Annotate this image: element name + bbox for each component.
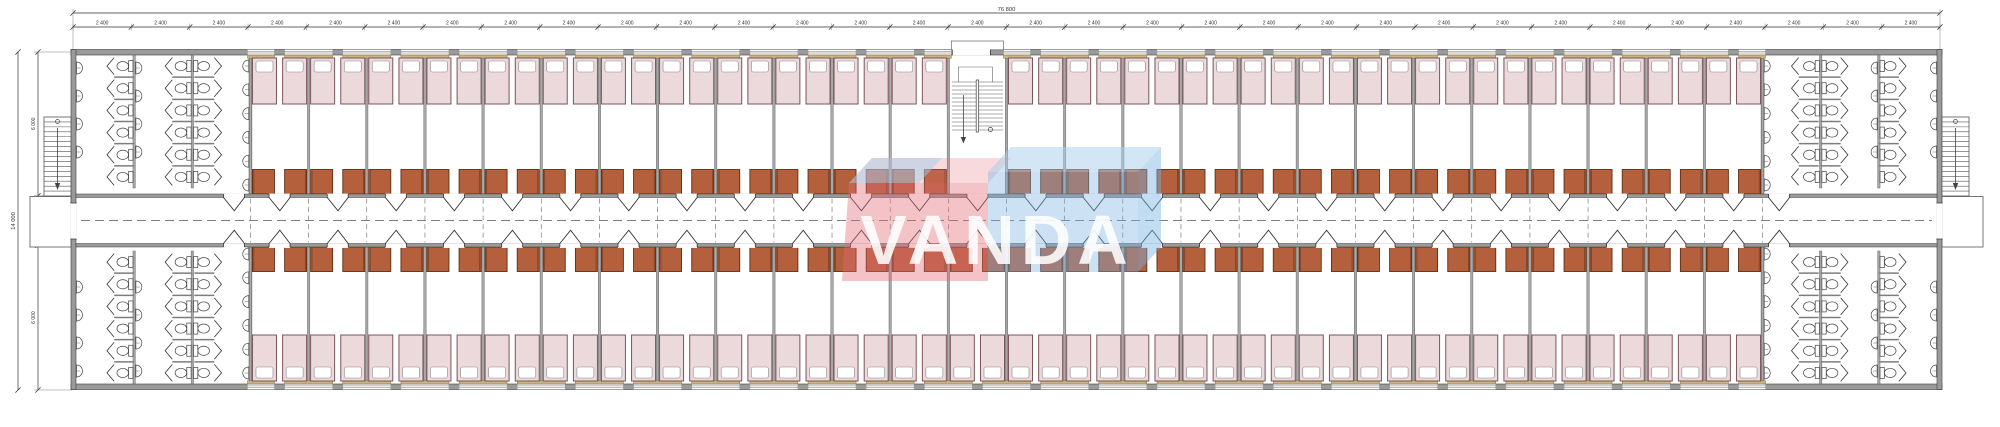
pillow [896, 367, 913, 378]
partition-wall [1180, 247, 1182, 384]
window [517, 384, 565, 389]
bed-icon [1357, 58, 1381, 104]
bed-icon [1271, 335, 1295, 381]
window [983, 384, 1031, 389]
pillow [372, 61, 389, 72]
bed-icon [1532, 58, 1556, 104]
wardrobe-icon [1416, 170, 1438, 195]
bed-icon [543, 58, 567, 104]
window [692, 50, 740, 55]
bed-icon [1039, 58, 1063, 104]
pillow [1624, 367, 1641, 378]
door-opening [1607, 194, 1628, 199]
wardrobe-icon [1506, 170, 1528, 195]
pillow [1449, 367, 1466, 378]
pillow [344, 367, 361, 378]
dim-label-bay: 2 400 [446, 21, 459, 27]
watermark-blue-top [988, 147, 1161, 172]
bed-icon [1737, 58, 1761, 104]
bed-icon [1446, 58, 1470, 104]
wardrobe-icon [1273, 170, 1295, 195]
wardrobe-icon [1648, 247, 1670, 272]
door-opening [1316, 194, 1337, 199]
pillow [693, 61, 710, 72]
door-opening [676, 194, 697, 199]
wardrobe-icon [517, 170, 539, 195]
wardrobe-icon [1706, 170, 1728, 195]
bed-icon [485, 58, 509, 104]
dim-label-bay: 2 400 [1146, 21, 1159, 27]
pillow [1100, 61, 1117, 72]
wardrobe-icon [660, 247, 682, 272]
window [1004, 50, 1031, 55]
pillow [1419, 367, 1436, 378]
toilet-bowl [117, 150, 129, 159]
wardrobe-icon [808, 170, 830, 195]
pillow [1566, 367, 1583, 378]
door-opening [223, 194, 244, 199]
door-opening [1258, 243, 1279, 248]
bed-icon [1562, 58, 1586, 104]
wardrobe-icon [311, 170, 333, 195]
bed-icon [748, 58, 772, 104]
wardrobe-icon [517, 247, 539, 272]
pillow [1391, 61, 1408, 72]
pillow [1361, 61, 1378, 72]
window [1739, 384, 1766, 389]
wardrobe-icon [401, 247, 423, 272]
toilet-icon [194, 105, 198, 116]
pillow [402, 367, 419, 378]
dim-label-bay: 2 400 [96, 21, 109, 27]
bed-icon [922, 335, 946, 381]
window [866, 384, 914, 389]
dim-label-bay: 2 400 [913, 21, 926, 27]
pillow [926, 367, 943, 378]
pillow [1100, 367, 1117, 378]
pillow [256, 367, 273, 378]
pillow [663, 61, 680, 72]
partition-wall [1412, 247, 1414, 384]
toilet-icon [194, 171, 198, 182]
toilet-icon [187, 127, 191, 138]
wardrobe-icon [343, 170, 365, 195]
entry-landing [30, 197, 71, 248]
door-opening [618, 243, 639, 248]
wardrobe-icon [252, 170, 274, 195]
pillow [1012, 367, 1029, 378]
door-opening [734, 194, 755, 199]
wardrobe-icon [1331, 170, 1353, 195]
window [634, 50, 682, 55]
pillow [1535, 367, 1552, 378]
partition-wall [773, 247, 775, 384]
bed-icon [515, 335, 539, 381]
door-opening [1200, 194, 1221, 199]
door-opening [676, 243, 697, 248]
dim-label-bay: 2 400 [213, 21, 226, 27]
wardrobe-icon [1241, 170, 1263, 195]
bed-icon [1299, 335, 1323, 381]
window [1680, 384, 1728, 389]
bed-icon [1241, 335, 1265, 381]
dim-label-bay: 2 400 [1788, 21, 1801, 27]
dim-label-left-overall: 14 000 [11, 212, 17, 230]
partition-wall [831, 247, 833, 384]
door-opening [1548, 194, 1569, 199]
bed-icon [1183, 58, 1207, 104]
partition-wall [424, 55, 426, 194]
bed-icon [457, 335, 481, 381]
bed-icon [1299, 58, 1323, 104]
pillow [838, 61, 855, 72]
door-opening [1200, 243, 1221, 248]
door-opening [444, 194, 465, 199]
toilet-icon [187, 149, 191, 160]
door-opening [223, 243, 244, 248]
wardrobe-icon [1183, 247, 1205, 272]
pillow [1740, 367, 1757, 378]
window [1041, 50, 1089, 55]
door-opening [1665, 194, 1686, 199]
window [1331, 50, 1379, 55]
door-opening [1316, 243, 1337, 248]
wardrobe-icon [311, 247, 333, 272]
dim-label-bay: 2 400 [1263, 21, 1276, 27]
window [401, 384, 449, 389]
wardrobe-icon [1564, 247, 1586, 272]
bed-icon [573, 335, 597, 381]
dim-label-bay: 2 400 [971, 21, 984, 27]
door-opening [502, 243, 523, 248]
bed-icon [834, 335, 858, 381]
bed-icon [776, 58, 800, 104]
pillow [896, 61, 913, 72]
pillow [1303, 61, 1320, 72]
bed-icon [601, 58, 625, 104]
pillow [1128, 61, 1145, 72]
pillow [721, 367, 738, 378]
toilet-bowl [198, 172, 210, 181]
bed-icon [601, 335, 625, 381]
wardrobe-icon [1241, 247, 1263, 272]
bed-icon [573, 58, 597, 104]
bed-icon [311, 58, 335, 104]
toilet-bowl [117, 84, 129, 93]
wardrobe-icon [1622, 170, 1644, 195]
pillow [1419, 61, 1436, 72]
pillow [1652, 61, 1669, 72]
dim-label-top-overall: 76 800 [998, 7, 1016, 13]
wardrobe-icon [427, 247, 449, 272]
bed-icon [283, 58, 307, 104]
window [343, 384, 391, 389]
wardrobe-icon [369, 247, 391, 272]
window [924, 50, 951, 55]
wardrobe-icon [1474, 247, 1496, 272]
partition-wall [1703, 55, 1705, 194]
window [750, 384, 798, 389]
window [808, 50, 856, 55]
partition-wall [1238, 55, 1240, 194]
window [924, 384, 972, 389]
toilet-bowl [175, 150, 187, 159]
partition-wall [773, 55, 775, 194]
pillow [314, 61, 331, 72]
door-opening [385, 194, 406, 199]
window [1273, 384, 1321, 389]
toilet-icon [194, 127, 198, 138]
watermark-text: VANDA [860, 201, 1134, 279]
bed-icon [1039, 335, 1063, 381]
pillow [314, 367, 331, 378]
door-opening [560, 194, 581, 199]
bed-icon [1009, 58, 1033, 104]
pillow [810, 61, 827, 72]
pillow [344, 61, 361, 72]
bed-icon [1678, 58, 1702, 104]
bed-icon [806, 58, 830, 104]
wardrobe-icon [1590, 170, 1612, 195]
bed-icon [834, 58, 858, 104]
bed-icon [1416, 335, 1440, 381]
pillow [1710, 367, 1727, 378]
pillow [1535, 61, 1552, 72]
partition-wall [598, 55, 600, 194]
door-opening [1665, 243, 1686, 248]
window [1099, 50, 1147, 55]
partition-wall [1645, 55, 1647, 194]
door-opening [792, 194, 813, 199]
bed-icon [1416, 58, 1440, 104]
bed-icon [1474, 335, 1498, 381]
window [247, 384, 274, 389]
bed-icon [690, 58, 714, 104]
wardrobe-icon [1448, 247, 1470, 272]
window [750, 50, 798, 55]
wardrobe-icon [1331, 247, 1353, 272]
partition-wall [1238, 247, 1240, 384]
window [1680, 50, 1728, 55]
window [247, 50, 274, 55]
partition-wall [1587, 55, 1589, 194]
pillow [1682, 61, 1699, 72]
partition-wall [307, 55, 309, 194]
partition-wall [1296, 55, 1298, 194]
window [1157, 384, 1205, 389]
bed-icon [718, 58, 742, 104]
pillow [1158, 61, 1175, 72]
wardrobe-icon [1390, 247, 1412, 272]
bed-icon [776, 335, 800, 381]
wardrobe-icon [575, 247, 597, 272]
pillow [779, 367, 796, 378]
wardrobe-icon [543, 247, 565, 272]
bed-icon [1504, 58, 1528, 104]
pillow [1361, 367, 1378, 378]
dim-label-bay: 2 400 [504, 21, 517, 27]
dim-label-bay: 2 400 [1730, 21, 1743, 27]
dim-label-bay: 2 400 [1905, 21, 1918, 27]
wardrobe-icon [343, 247, 365, 272]
dim-label-bay: 2 400 [154, 21, 167, 27]
dim-label-left-seg: 6 000 [31, 117, 37, 130]
window [1390, 384, 1438, 389]
window [285, 50, 333, 55]
wardrobe-icon [1357, 170, 1379, 195]
pillow [1217, 61, 1234, 72]
pillow [1158, 367, 1175, 378]
bed-icon [1706, 335, 1730, 381]
partition-wall [831, 55, 833, 194]
wardrobe-icon [1390, 170, 1412, 195]
pillow [519, 61, 536, 72]
pillow [1245, 61, 1262, 72]
window [634, 384, 682, 389]
pillow [1042, 61, 1059, 72]
bed-icon [427, 58, 451, 104]
pillow [1477, 61, 1494, 72]
wardrobe-icon [692, 170, 714, 195]
door-opening [1548, 243, 1569, 248]
bed-icon [864, 58, 888, 104]
dim-label-bay: 2 400 [1613, 21, 1626, 27]
bed-icon [1648, 335, 1672, 381]
wardrobe-icon [1532, 170, 1554, 195]
partition-wall [656, 247, 658, 384]
wardrobe-icon [285, 170, 307, 195]
window [1448, 384, 1496, 389]
bed-icon [1155, 335, 1179, 381]
bed-icon [748, 335, 772, 381]
window [866, 50, 914, 55]
toilet-icon [129, 171, 133, 182]
window [808, 384, 856, 389]
pillow [868, 61, 885, 72]
bed-icon [1620, 335, 1644, 381]
pillow [1449, 61, 1466, 72]
toilet-bowl [198, 106, 210, 115]
dim-label-bay: 2 400 [1204, 21, 1217, 27]
pillow [1186, 61, 1203, 72]
toilet-icon [194, 149, 198, 160]
pillow [256, 61, 273, 72]
pillow [1275, 61, 1292, 72]
wardrobe-icon [285, 247, 307, 272]
partition-wall [424, 247, 426, 384]
toilet-bowl [117, 172, 129, 181]
partition-wall [1471, 55, 1473, 194]
door-opening [1374, 243, 1395, 248]
wardrobe-icon [1680, 170, 1702, 195]
bed-icon [660, 335, 684, 381]
dim-label-bay: 2 400 [1671, 21, 1684, 27]
window [517, 50, 565, 55]
dim-label-bay: 2 400 [1496, 21, 1509, 27]
toilet-bowl [117, 106, 129, 115]
pillow [1652, 367, 1669, 378]
partition-wall [482, 247, 484, 384]
dim-label-bay: 2 400 [1555, 21, 1568, 27]
window [1273, 50, 1321, 55]
bed-icon [632, 58, 656, 104]
dim-label-bay: 2 400 [1088, 21, 1101, 27]
dim-label-bay: 2 400 [1846, 21, 1859, 27]
wardrobe-icon [1215, 247, 1237, 272]
bed-icon [1620, 58, 1644, 104]
wardrobe-icon [543, 170, 565, 195]
pillow [779, 61, 796, 72]
pillow [547, 367, 564, 378]
door-opening [385, 243, 406, 248]
wardrobe-icon [1590, 247, 1612, 272]
door-opening [1607, 243, 1628, 248]
partition-wall [1761, 247, 1763, 384]
pillow [1042, 367, 1059, 378]
pillow [1507, 367, 1524, 378]
pillow [430, 367, 447, 378]
door-opening [1769, 243, 1790, 248]
bed-icon [399, 335, 423, 381]
pillow [1012, 61, 1029, 72]
door-opening [792, 243, 813, 248]
window [575, 50, 623, 55]
dim-label-bay: 2 400 [621, 21, 634, 27]
toilet-icon [187, 105, 191, 116]
partition-wall [1412, 55, 1414, 194]
pillow [1710, 61, 1727, 72]
toilet-icon [187, 171, 191, 182]
dim-label-bay: 2 400 [854, 21, 867, 27]
toilet-icon [129, 127, 133, 138]
stair-stringer [976, 80, 978, 132]
toilet-icon [194, 83, 198, 94]
pillow [693, 367, 710, 378]
wardrobe-icon [808, 247, 830, 272]
pillow [1333, 367, 1350, 378]
bed-icon [1590, 335, 1614, 381]
toilet-icon [129, 83, 133, 94]
window [692, 384, 740, 389]
wardrobe-icon [1706, 247, 1728, 272]
wardrobe-icon [634, 170, 656, 195]
bed-icon [1706, 58, 1730, 104]
window [1739, 50, 1766, 55]
wardrobe-icon [369, 170, 391, 195]
bed-icon [1097, 58, 1121, 104]
bed-icon [543, 335, 567, 381]
bed-icon [341, 335, 365, 381]
partition-wall [1471, 247, 1473, 384]
partition-wall [715, 247, 717, 384]
pillow [838, 367, 855, 378]
wardrobe-icon [1564, 170, 1586, 195]
bed-icon [632, 335, 656, 381]
pillow [605, 61, 622, 72]
wardrobe-icon [692, 247, 714, 272]
window [1506, 384, 1554, 389]
pillow [1070, 61, 1087, 72]
door-opening [952, 49, 990, 55]
bed-icon [1271, 58, 1295, 104]
wardrobe-icon [1357, 247, 1379, 272]
door-opening [1490, 194, 1511, 199]
window [1564, 50, 1612, 55]
pillow [577, 61, 594, 72]
toilet-bowl [175, 172, 187, 181]
pillow [1275, 367, 1292, 378]
toilet-bowl [175, 84, 187, 93]
